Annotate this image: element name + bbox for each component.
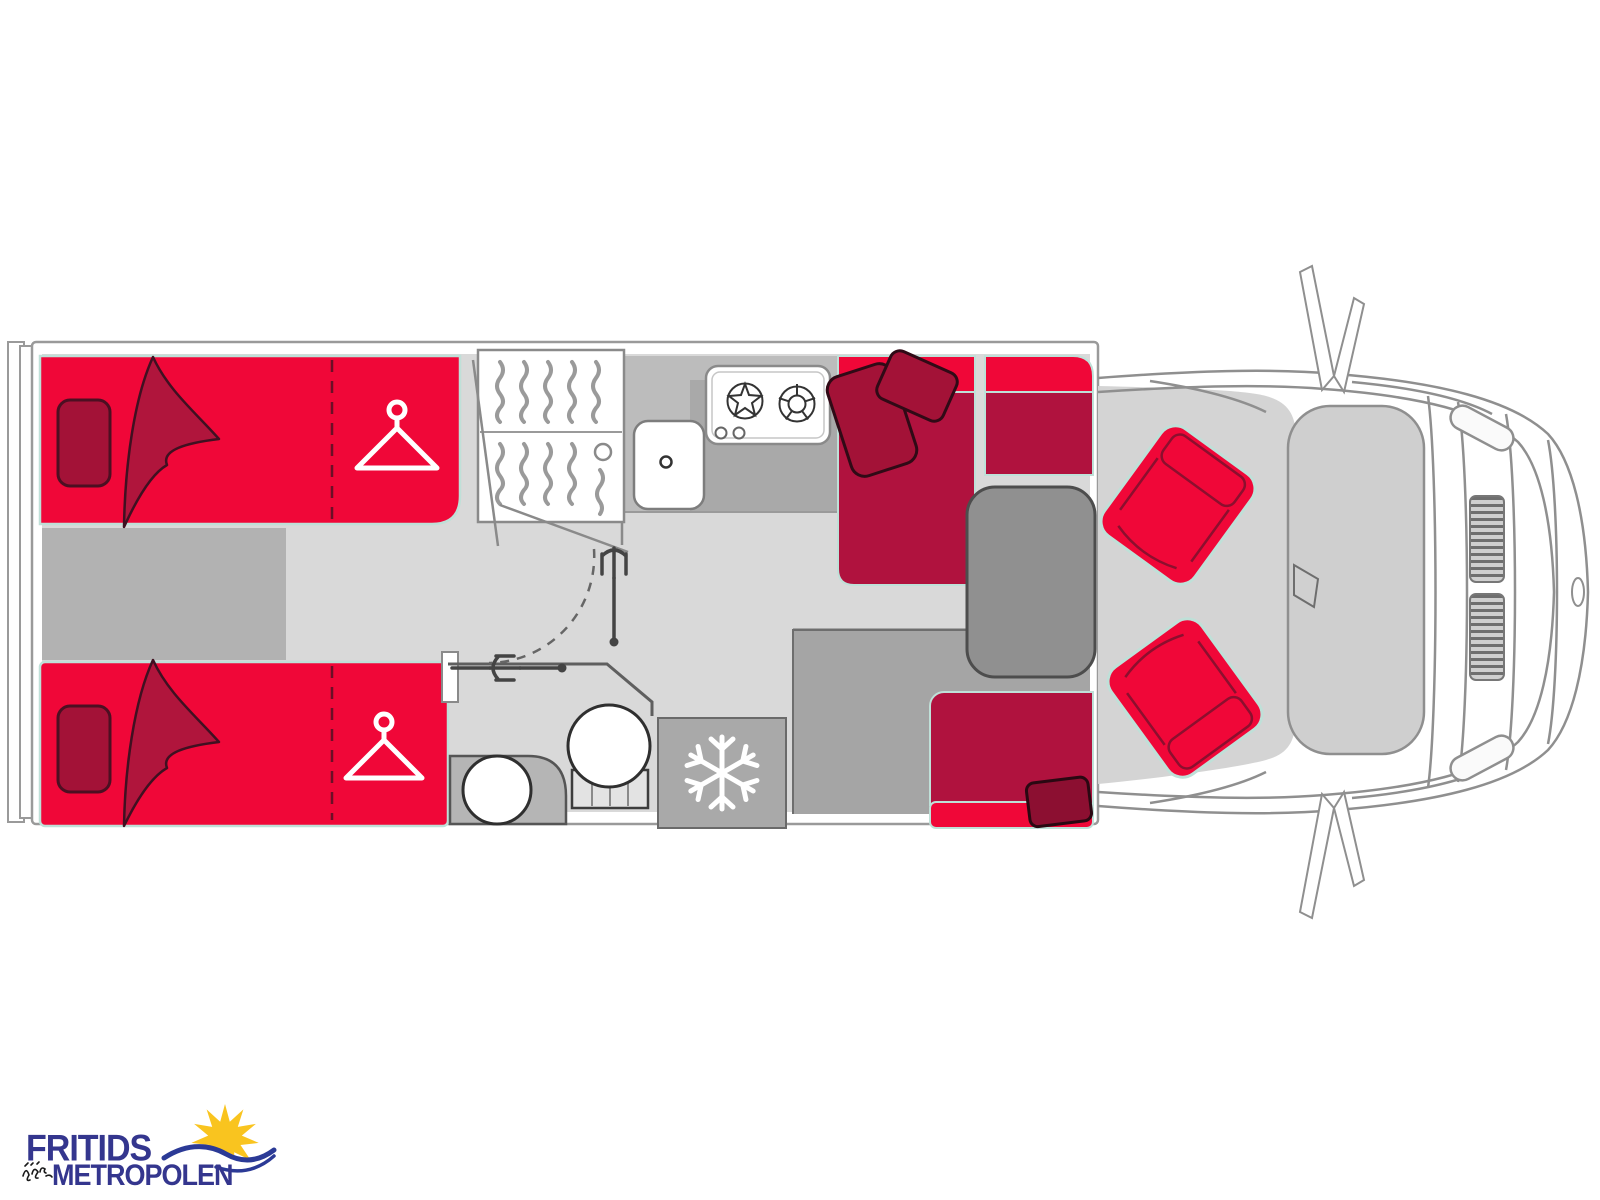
dealer-logo: FRITIDS METROPOLEN [20,1082,290,1200]
bumper-line [1548,440,1557,744]
floorplan-canvas: FRITIDS METROPOLEN [0,0,1600,1200]
floor-aisle [42,528,286,660]
wall-stub [442,652,458,702]
dinette-table [967,487,1095,677]
two-burner-stove [706,366,830,444]
toilet [568,705,650,808]
front-badge [1572,578,1584,606]
twin-bed-top [40,356,460,527]
shelf-unit [473,350,628,552]
kitchen-sink [634,421,704,509]
hood-line [1458,402,1467,782]
van-cab [1094,266,1588,918]
motorhome-floorplan [0,0,1600,1200]
twin-bed-bottom [40,652,458,826]
stove-knob-icon [716,428,727,439]
door-pivot [558,664,567,673]
side-seat [985,356,1093,475]
refrigerator [658,718,786,828]
door-pivot [610,638,619,647]
knob-icon [595,444,611,460]
grille-bottom [1470,594,1504,680]
l-sofa [824,348,975,585]
grille-top [1470,496,1504,582]
bumper-line [1506,414,1515,770]
hood-line [1428,396,1436,788]
stove-knob-icon [734,428,745,439]
washbasin [450,756,566,824]
rear-bench [930,692,1093,828]
pillow [1026,776,1093,827]
logo-text-line2: METROPOLEN [52,1159,233,1192]
sink-drain-icon [661,457,672,468]
pillow [58,706,110,792]
pillow [58,400,110,486]
